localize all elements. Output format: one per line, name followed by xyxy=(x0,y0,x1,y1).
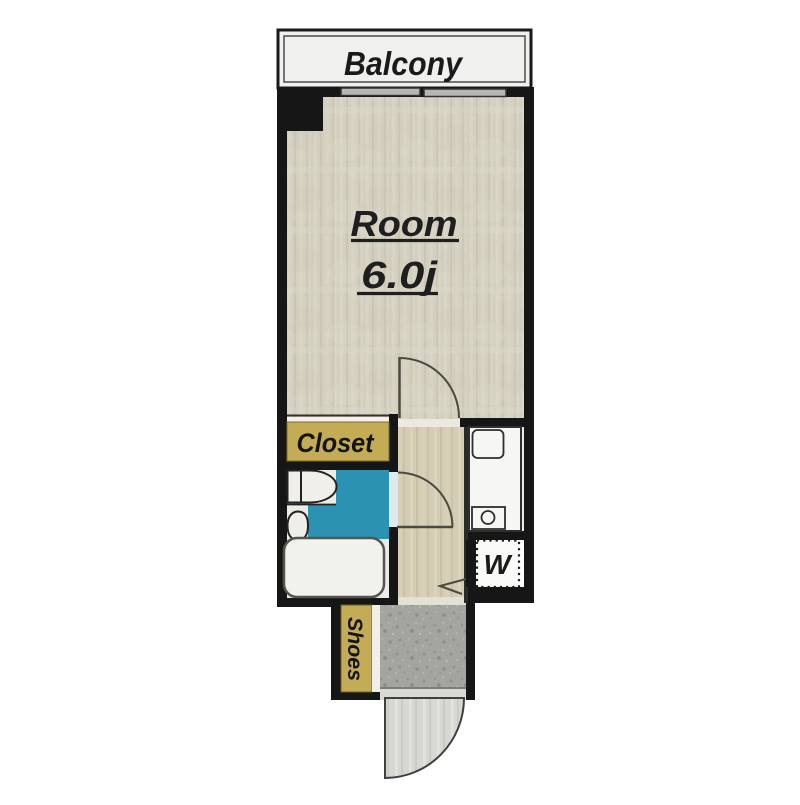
svg-text:Room: Room xyxy=(351,203,458,244)
svg-text:Closet: Closet xyxy=(297,428,375,458)
svg-text:Balcony: Balcony xyxy=(344,45,464,82)
svg-text:Shoes: Shoes xyxy=(343,617,366,681)
svg-text:6.0j: 6.0j xyxy=(361,255,439,297)
svg-text:W: W xyxy=(484,549,514,580)
